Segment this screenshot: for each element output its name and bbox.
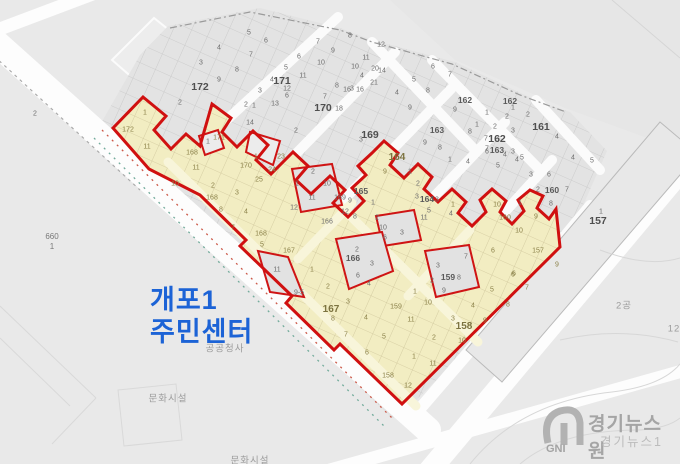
parcel-label: 157 (589, 216, 607, 227)
parcel-label: 12 (290, 205, 298, 212)
parcel-label: 10 (379, 225, 387, 232)
parcel-label: 9 (423, 140, 427, 147)
parcel-label: 12 (377, 42, 385, 49)
parcel-label: 12 (341, 209, 349, 216)
parcel-label: 2 (536, 187, 540, 194)
parcel-label: 166 (346, 254, 360, 263)
parcel-label: 6 (264, 38, 268, 45)
parcel-label: 10 (515, 228, 523, 235)
news-agency-logo-icon: GNI (538, 403, 586, 453)
parcel-label: 2 (493, 124, 497, 131)
parcel-label: 167 (323, 305, 340, 315)
parcel-label: 4 (471, 303, 475, 310)
parcel-label: 24 (268, 167, 276, 174)
parcel-label: 170 (240, 163, 252, 170)
parcel-label: 11 (362, 55, 369, 62)
parcel-label: 2 (375, 215, 379, 222)
parcel-label: 9 (217, 77, 221, 84)
parcel-label: 3 (511, 128, 515, 135)
parcel-label: 172 (191, 82, 209, 93)
parcel-label: 6 (356, 273, 360, 280)
parcel-label: 3 (235, 190, 239, 197)
parcel-label: 168 (186, 150, 198, 157)
parcel-label: 9 (534, 214, 538, 221)
parcel-label: 8 (219, 207, 223, 214)
parcel-label: 160 (499, 215, 511, 222)
parcel-label: 5 (427, 208, 431, 215)
parcel-label: 8 (235, 67, 239, 74)
parcel-label: 6 (431, 64, 435, 71)
region-title: 개포1 주민센터 (150, 284, 253, 349)
parcel-label: 5 (590, 158, 594, 165)
parcel-label: 4 (515, 157, 519, 164)
parcel-label: 1 (412, 354, 416, 361)
parcel-label: 9 (331, 48, 335, 55)
parcel-label: 172 (122, 127, 134, 134)
parcel-label: 8 (438, 145, 442, 152)
parcel-label: 5 (382, 334, 386, 341)
parcel-label: 13 (271, 101, 279, 108)
parcel-label: 5 (260, 242, 264, 249)
parcel-label: 6 (297, 54, 301, 61)
parcel-label: 4 (395, 90, 399, 97)
parcel-label: 2 (432, 335, 436, 342)
parcel-label: 660 (45, 233, 58, 241)
parcel-label: 1 (310, 267, 314, 274)
parcel-label: 8 (549, 201, 553, 208)
parcel-label: 18 (335, 106, 343, 113)
parcel-label: 2 (526, 112, 530, 119)
parcel-label: 11 (273, 267, 280, 274)
parcel-label: 164 (389, 153, 406, 163)
parcel-label: 9 (408, 105, 412, 112)
parcel-label: 1 (511, 105, 515, 112)
parcel-label: 7 (565, 187, 569, 194)
parcel-label: 11 (143, 144, 150, 151)
parcel-label: 2 (33, 111, 37, 118)
parcel-label: 7 (525, 285, 529, 292)
parcel-label: 10 (424, 300, 432, 307)
parcel-label: 11 (192, 165, 199, 172)
parcel-label: 7 (323, 94, 327, 101)
parcel-label: 6 (511, 272, 515, 279)
parcel-label: 11 (429, 361, 436, 368)
parcel-label: 3 (400, 230, 404, 237)
parcel-label: 9 (383, 169, 387, 176)
parcel-label: 20 (371, 66, 379, 73)
parcel-label: 1 (143, 110, 147, 117)
parcel-label: 1 (448, 157, 452, 164)
parcel-label: 3 (511, 149, 515, 156)
parcel-label: 9 (348, 198, 352, 205)
parcel-label: 10 (171, 181, 179, 188)
parcel-label: 161 (532, 122, 550, 133)
parcel-label: 7 (344, 332, 348, 339)
parcel-label: 14 (246, 120, 254, 127)
parcel-label: 160 (545, 186, 559, 195)
parcel-label: 12 (404, 383, 412, 390)
parcel-label: 2 (416, 181, 420, 188)
parcel-label: 6 (547, 172, 551, 179)
parcel-label: 157 (532, 248, 544, 255)
map-text-label: 문화시설 (149, 394, 188, 404)
parcel-label: 4 (244, 209, 248, 216)
parcel-label: 4 (571, 155, 575, 162)
parcel-label: 9-5 (294, 290, 304, 297)
parcel-label: 4 (449, 211, 453, 218)
parcel-label: 9 (555, 262, 559, 269)
parcel-label: 12 (283, 86, 291, 93)
parcel-label: 7 (464, 254, 468, 261)
parcel-label: 8 (426, 88, 430, 95)
parcel-label: 162 (488, 134, 506, 145)
parcel-label: 159 (390, 304, 402, 311)
parcel-label: 164 (420, 195, 434, 204)
parcel-label: 169 (361, 130, 379, 141)
parcel-label: 2 (355, 247, 359, 254)
parcel-label: 8 (331, 316, 335, 323)
parcel-label: 3 (436, 263, 440, 270)
parcel-label: 4 (367, 281, 371, 288)
parcel-label: 3 (199, 60, 203, 67)
parcel-label: 6 (383, 235, 387, 242)
parcel-label: 8 (353, 214, 357, 221)
map-text-label: 문화시설 (231, 456, 270, 464)
parcel-label: 2 (505, 114, 509, 121)
parcel-label: 4 (364, 315, 368, 322)
parcel-label: 10 (351, 64, 359, 71)
parcel-label: 14 (378, 68, 386, 75)
parcel-label: 158 (382, 373, 394, 380)
parcel-label: 3 (415, 194, 419, 201)
parcel-label: 7 (316, 39, 320, 46)
parcel-label: 10 (493, 202, 501, 209)
parcel-label: 168 (255, 231, 267, 238)
parcel-label: 170 (314, 103, 332, 114)
parcel-label: 7 (231, 225, 235, 232)
parcel-label: 166 (321, 219, 333, 226)
parcel-label: 2 (244, 102, 248, 109)
parcel-label: 5 (284, 65, 288, 72)
parcel-label: 9 (442, 288, 446, 295)
parcel-label: 159 (441, 273, 455, 282)
parcel-label: 6 (491, 248, 495, 255)
parcel-label: 3 (370, 261, 374, 268)
parcel-label: 3 (435, 197, 439, 204)
parcel-label: 4 (503, 152, 507, 159)
parcel-label: 169 (334, 195, 346, 202)
parcel-label: 1 (371, 200, 375, 207)
parcel-label: 11 (308, 195, 315, 202)
parcel-label: 3 (359, 137, 363, 144)
parcel-label: 5 (520, 155, 524, 162)
parcel-label: 3 (346, 299, 350, 306)
parcel-label: 168 (206, 195, 218, 202)
map-text-label: 12 (668, 324, 680, 334)
parcel-label: 10 (317, 60, 325, 67)
parcel-label: 6 (365, 350, 369, 357)
parcel-label: 4 (466, 159, 470, 166)
parcel-label: 4 (555, 134, 559, 141)
map-text-label: 2공 (616, 301, 632, 311)
region-title-line1: 개포1 (150, 284, 253, 316)
region-title-line2: 주민센터 (150, 316, 253, 348)
parcel-label: 162 (458, 96, 472, 105)
parcel-label: 5 (496, 163, 500, 170)
parcel-label: 11 (407, 317, 414, 324)
parcel-label: 10 (458, 338, 466, 345)
parcel-label: 21 (370, 80, 378, 87)
parcel-label: 1 (485, 110, 489, 117)
parcel-label: 2 (326, 284, 330, 291)
parcel-label: 8 (457, 275, 461, 282)
parcel-label: 9 (483, 318, 487, 325)
parcel-label: 5 (490, 287, 494, 294)
parcel-label: 1 (50, 243, 54, 251)
parcel-label: 167 (283, 248, 295, 255)
parcel-label: 3 (451, 316, 455, 323)
parcel-label: 1 (413, 289, 417, 296)
parcel-label: 2 (430, 278, 434, 285)
parcel-label: 6 (285, 93, 289, 100)
parcel-label: 1 (252, 103, 256, 110)
parcel-label: 16 (343, 87, 351, 94)
cadastral-map: 5437689172228765910114171123132114212111… (0, 0, 680, 464)
parcel-label: 165 (354, 187, 368, 196)
parcel-label: 7 (249, 52, 253, 59)
watermark: GNI 경기뉴스원 경기뉴스1 (538, 403, 680, 455)
parcel-label: 8 (468, 129, 472, 136)
parcel-label: 8 (506, 302, 510, 309)
parcel-label: 1 (254, 154, 258, 161)
svg-text:GNI: GNI (546, 443, 566, 453)
parcel-label: 2 (294, 128, 298, 135)
parcel-label: 23 (277, 154, 285, 161)
parcel-label: 3 (529, 172, 533, 179)
parcel-label: 5 (247, 30, 251, 37)
parcel-label: 4 (217, 45, 221, 52)
parcel-label: 1 (408, 169, 412, 176)
parcel-label: 25 (255, 177, 263, 184)
parcel-label: 1 (206, 139, 210, 146)
parcel-label: 1 (295, 181, 299, 188)
parcel-label: 171 (213, 135, 225, 142)
watermark-subtitle: 경기뉴스1 (600, 431, 663, 450)
parcel-label: 158 (456, 322, 473, 332)
parcel-label: 10 (323, 181, 331, 188)
parcel-label: 8 (348, 33, 352, 40)
parcel-label: 1 (475, 122, 479, 129)
parcel-label: 163 (430, 126, 444, 135)
parcel-label: 163 (490, 146, 504, 155)
parcel-label: 11 (299, 73, 306, 80)
parcel-label: 2 (178, 100, 182, 107)
parcel-label: 3 (258, 88, 262, 95)
label-layer: 5437689172228765910114171123132114212111… (0, 0, 680, 464)
parcel-label: 8 (335, 83, 339, 90)
parcel-label: 1 (451, 202, 455, 209)
parcel-label: 1 (518, 200, 522, 207)
parcel-label: 16 (356, 87, 364, 94)
parcel-label: 5 (412, 77, 416, 84)
parcel-label: 6 (485, 149, 489, 156)
parcel-label: 7 (448, 72, 452, 79)
parcel-label: 2 (311, 169, 315, 176)
parcel-label: 11 (420, 215, 427, 222)
parcel-label: 9 (453, 107, 457, 114)
parcel-label: 4 (360, 73, 364, 80)
parcel-label: 2 (211, 183, 215, 190)
